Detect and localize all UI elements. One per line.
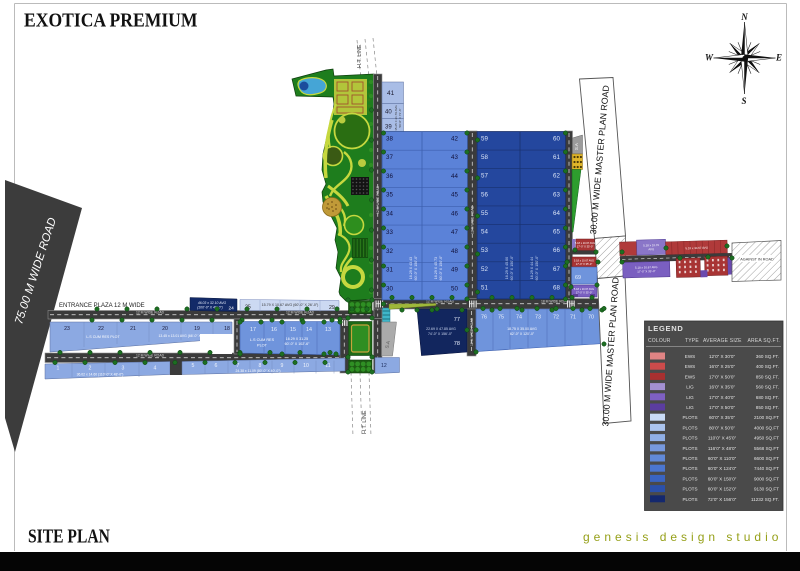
svg-text:PLOTS: PLOTS xyxy=(682,425,697,430)
svg-text:39: 39 xyxy=(385,125,392,131)
svg-text:PLOTS: PLOTS xyxy=(682,415,697,420)
svg-text:850 SQ.FT.: 850 SQ.FT. xyxy=(756,405,779,410)
svg-text:1: 1 xyxy=(57,366,60,372)
svg-text:60’0” X 152’0”: 60’0” X 152’0” xyxy=(708,487,737,492)
svg-text:61: 61 xyxy=(553,154,560,161)
svg-text:9000 SQ.FT: 9000 SQ.FT xyxy=(754,476,779,481)
svg-text:36.02 x 14.60 (110’-0” X 48’-0: 36.02 x 14.60 (110’-0” X 48’-0”) xyxy=(77,373,124,377)
svg-text:12 M WIDE ROAD: 12 M WIDE ROAD xyxy=(286,311,315,315)
svg-text:75: 75 xyxy=(498,315,504,321)
svg-text:9: 9 xyxy=(281,363,284,369)
svg-text:genesis design studio: genesis design studio xyxy=(583,530,782,544)
svg-text:16.29 X 45.00: 16.29 X 45.00 xyxy=(505,257,509,279)
svg-text:38: 38 xyxy=(386,136,393,143)
svg-text:110’0” X 45’0”: 110’0” X 45’0” xyxy=(708,436,737,441)
svg-text:E: E xyxy=(775,53,782,63)
svg-text:33: 33 xyxy=(386,229,393,236)
svg-text:AREA SQ.FT.: AREA SQ.FT. xyxy=(748,338,781,344)
svg-text:49: 49 xyxy=(451,267,458,274)
svg-text:5.18 x 10.67 AVG: 5.18 x 10.67 AVG xyxy=(574,287,594,291)
svg-text:16’0” X 25’0”: 16’0” X 25’0” xyxy=(709,364,736,369)
svg-text:32: 32 xyxy=(386,248,393,255)
svg-text:4000 SQ.FT: 4000 SQ.FT xyxy=(754,425,779,430)
svg-text:43: 43 xyxy=(451,154,458,161)
svg-text:17’0” X 50’0”: 17’0” X 50’0” xyxy=(709,374,736,379)
svg-text:17: 17 xyxy=(250,327,256,333)
svg-text:19: 19 xyxy=(194,326,200,332)
svg-text:PLOTS: PLOTS xyxy=(682,497,697,502)
svg-text:42: 42 xyxy=(451,136,458,143)
svg-text:L.S CUM RES PLOT: L.S CUM RES PLOT xyxy=(86,335,120,339)
svg-text:22: 22 xyxy=(98,326,104,332)
svg-text:74’-0” X 156’-0”: 74’-0” X 156’-0” xyxy=(428,332,453,336)
svg-text:22.69 X 47.85 AVG: 22.69 X 47.85 AVG xyxy=(426,327,456,331)
svg-text:5.18 x 10.67 AVG: 5.18 x 10.67 AVG xyxy=(685,246,708,251)
svg-text:10: 10 xyxy=(303,363,309,369)
svg-text:48: 48 xyxy=(451,248,458,255)
svg-text:9130 SQ.FT: 9130 SQ.FT xyxy=(754,487,779,492)
svg-text:3: 3 xyxy=(122,366,125,372)
svg-text:58: 58 xyxy=(481,154,488,161)
svg-text:S: S xyxy=(741,96,746,106)
svg-text:45: 45 xyxy=(451,192,458,199)
svg-text:5.18 x 10.67 AVG: 5.18 x 10.67 AVG xyxy=(574,259,594,263)
svg-text:73: 73 xyxy=(535,315,541,321)
svg-text:52: 52 xyxy=(481,266,488,273)
svg-text:15: 15 xyxy=(290,327,296,333)
svg-text:SITE PLAN: SITE PLAN xyxy=(28,525,110,547)
svg-text:2: 2 xyxy=(89,366,92,372)
svg-text:18: 18 xyxy=(224,326,230,332)
svg-text:L.S CUM RES: L.S CUM RES xyxy=(250,338,275,342)
svg-text:TYPE: TYPE xyxy=(685,338,699,344)
svg-text:16.29 X 45.73: 16.29 X 45.73 xyxy=(434,257,438,279)
svg-text:77: 77 xyxy=(454,317,460,323)
svg-text:35: 35 xyxy=(386,192,393,199)
svg-text:68: 68 xyxy=(553,284,560,291)
svg-text:12 M WIDE ROAD: 12 M WIDE ROAD xyxy=(471,205,475,234)
svg-text:16’0” X 35’0”: 16’0” X 35’0” xyxy=(709,385,736,390)
svg-text:36: 36 xyxy=(386,173,393,180)
svg-text:PLOT: PLOT xyxy=(257,344,268,348)
svg-text:H.T. LINE: H.T. LINE xyxy=(362,410,368,434)
svg-text:16.29 X 43.43: 16.29 X 43.43 xyxy=(409,257,413,279)
svg-text:EXOTICA PREMIUM: EXOTICA PREMIUM xyxy=(24,10,198,32)
svg-text:17’-0” X 35’-0”: 17’-0” X 35’-0” xyxy=(576,291,593,295)
svg-text:55: 55 xyxy=(481,210,488,217)
svg-text:LIG: LIG xyxy=(686,385,694,390)
svg-text:N: N xyxy=(740,12,748,22)
svg-text:AGAINST IN ROAD: AGAINST IN ROAD xyxy=(740,258,774,262)
svg-text:6600 SQ.FT: 6600 SQ.FT xyxy=(754,456,779,461)
svg-text:69: 69 xyxy=(575,275,581,281)
svg-text:PLOTS: PLOTS xyxy=(682,446,697,451)
svg-text:S.A: S.A xyxy=(574,143,579,150)
svg-text:COLOUR: COLOUR xyxy=(648,338,671,344)
svg-text:360 SQ.FT.: 360 SQ.FT. xyxy=(756,354,779,359)
svg-text:60’-0” X 150’-0”: 60’-0” X 150’-0” xyxy=(510,255,514,281)
svg-text:78: 78 xyxy=(454,341,460,347)
svg-text:50’-0” X 71’-6”: 50’-0” X 71’-6” xyxy=(398,108,402,127)
svg-text:60’-0” X 150’-0”: 60’-0” X 150’-0” xyxy=(535,255,539,281)
svg-text:51: 51 xyxy=(481,284,488,291)
svg-text:PLOTS: PLOTS xyxy=(682,466,697,471)
svg-text:60’0” X 150’0”: 60’0” X 150’0” xyxy=(708,476,737,481)
svg-text:16.29 X 44.44: 16.29 X 44.44 xyxy=(530,257,534,279)
svg-text:16.29 X 31.25: 16.29 X 31.25 xyxy=(286,337,308,341)
svg-text:59: 59 xyxy=(481,136,488,143)
svg-text:12 M WIDE ROAD: 12 M WIDE ROAD xyxy=(376,185,380,214)
svg-text:4950 SQ.FT: 4950 SQ.FT xyxy=(754,436,779,441)
svg-text:18.75 X 35.00 AVG: 18.75 X 35.00 AVG xyxy=(507,327,537,331)
svg-text:12 M WIDE ROAD: 12 M WIDE ROAD xyxy=(470,317,474,346)
svg-text:14: 14 xyxy=(306,327,312,333)
svg-text:56: 56 xyxy=(481,191,488,198)
svg-text:62: 62 xyxy=(553,173,560,180)
svg-text:PLOTS: PLOTS xyxy=(682,436,697,441)
svg-text:60’-0” X 150’-0”: 60’-0” X 150’-0” xyxy=(439,255,443,281)
svg-text:67: 67 xyxy=(553,266,560,273)
svg-text:17’0” X 40’0”: 17’0” X 40’0” xyxy=(709,395,736,400)
svg-text:11232 SQ.FT.: 11232 SQ.FT. xyxy=(751,497,779,502)
svg-text:50: 50 xyxy=(451,285,458,292)
svg-text:31: 31 xyxy=(386,267,393,274)
svg-text:64: 64 xyxy=(553,210,560,217)
svg-text:21: 21 xyxy=(130,326,136,332)
svg-text:AVERAGE SIZE: AVERAGE SIZE xyxy=(703,338,742,344)
svg-text:62’-0” X 120’-0”: 62’-0” X 120’-0” xyxy=(510,332,535,336)
svg-text:17’-0” X 35’-0”: 17’-0” X 35’-0” xyxy=(576,262,593,266)
svg-text:60’0” X 124’0”: 60’0” X 124’0” xyxy=(708,466,737,471)
svg-text:17’-0” X 35’-0”: 17’-0” X 35’-0” xyxy=(637,269,655,274)
svg-text:680 SQ.FT.: 680 SQ.FT. xyxy=(756,395,779,400)
svg-text:5568 SQ.FT: 5568 SQ.FT xyxy=(754,446,779,451)
svg-text:80’0” X 50’0”: 80’0” X 50’0” xyxy=(709,425,736,430)
svg-text:4: 4 xyxy=(154,366,157,372)
svg-text:44: 44 xyxy=(451,173,458,180)
svg-text:PLOTS: PLOTS xyxy=(682,487,697,492)
svg-text:41: 41 xyxy=(387,90,395,97)
svg-text:116’0” X 48’0”: 116’0” X 48’0” xyxy=(708,446,737,451)
svg-text:H.T. LINE: H.T. LINE xyxy=(357,44,363,68)
svg-text:W: W xyxy=(705,53,714,63)
svg-text:12’0” X 30’0”: 12’0” X 30’0” xyxy=(709,354,736,359)
svg-text:54: 54 xyxy=(481,229,488,236)
svg-text:PLOTS: PLOTS xyxy=(682,476,697,481)
svg-text:53: 53 xyxy=(481,247,488,254)
svg-text:850 SQ.FT.: 850 SQ.FT. xyxy=(756,374,779,379)
svg-text:29: 29 xyxy=(329,305,335,311)
svg-text:17’0” X 50’0”: 17’0” X 50’0” xyxy=(709,405,736,410)
svg-text:46.03 x 32.10 AVG: 46.03 x 32.10 AVG xyxy=(198,301,227,305)
svg-text:70: 70 xyxy=(588,315,594,321)
svg-text:37: 37 xyxy=(386,154,393,161)
svg-text:16: 16 xyxy=(271,327,277,333)
svg-text:60: 60 xyxy=(553,136,560,143)
svg-text:60’-0” X 102’-6”: 60’-0” X 102’-6” xyxy=(285,342,311,346)
svg-text:34: 34 xyxy=(386,210,393,217)
svg-text:AVG: AVG xyxy=(648,247,655,251)
svg-text:EWS: EWS xyxy=(685,364,695,369)
svg-text:7440 SQ.FT: 7440 SQ.FT xyxy=(754,466,779,471)
svg-text:5: 5 xyxy=(192,363,195,369)
svg-text:46: 46 xyxy=(451,210,458,217)
svg-text:63: 63 xyxy=(553,191,560,198)
svg-text:60’0” X 110’0”: 60’0” X 110’0” xyxy=(708,456,737,461)
svg-text:72’0” X 156’0”: 72’0” X 156’0” xyxy=(708,497,737,502)
svg-text:5.18 x 10.67 AVG: 5.18 x 10.67 AVG xyxy=(575,241,595,245)
svg-text:PLOTS: PLOTS xyxy=(682,456,697,461)
svg-text:60’-0” X 150’-0”: 60’-0” X 150’-0” xyxy=(414,255,418,281)
svg-text:40: 40 xyxy=(385,110,392,116)
svg-text:72: 72 xyxy=(553,315,559,321)
svg-text:23: 23 xyxy=(64,326,70,332)
svg-text:24: 24 xyxy=(229,306,235,312)
svg-text:30: 30 xyxy=(386,285,393,292)
svg-text:24.38 x 11.09 (80’-0” X 40’-0”: 24.38 x 11.09 (80’-0” X 40’-0”) xyxy=(236,369,281,373)
svg-text:12: 12 xyxy=(381,363,387,369)
svg-text:LIG: LIG xyxy=(686,395,694,400)
svg-text:47: 47 xyxy=(451,229,458,236)
svg-text:EWS: EWS xyxy=(685,354,695,359)
svg-text:13: 13 xyxy=(325,327,331,333)
svg-text:66: 66 xyxy=(553,247,560,254)
svg-text:LEGEND: LEGEND xyxy=(648,324,683,333)
svg-text:560 SQ.FT.: 560 SQ.FT. xyxy=(756,385,779,390)
svg-text:60’0” X 35’0”: 60’0” X 35’0” xyxy=(709,415,736,420)
svg-text:57: 57 xyxy=(481,173,488,180)
svg-text:20: 20 xyxy=(162,326,168,332)
svg-text:400 SQ.FT.: 400 SQ.FT. xyxy=(756,364,779,369)
svg-text:2100 SQ.FT: 2100 SQ.FT xyxy=(754,415,779,420)
svg-text:15.79 X 10.67 AVG (60’-0” X 26: 15.79 X 10.67 AVG (60’-0” X 26’-0”) xyxy=(262,303,319,307)
svg-text:65: 65 xyxy=(553,229,560,236)
svg-text:17’-0” X 35’-0”: 17’-0” X 35’-0” xyxy=(577,245,594,249)
svg-text:EWS: EWS xyxy=(685,374,695,379)
svg-text:74: 74 xyxy=(516,315,522,321)
svg-text:LIG: LIG xyxy=(686,405,694,410)
svg-text:12 M WIDE ROAD: 12 M WIDE ROAD xyxy=(136,311,165,315)
svg-text:71: 71 xyxy=(570,315,576,321)
svg-text:ENTRANCE PLAZA 12 M WIDE: ENTRANCE PLAZA 12 M WIDE xyxy=(59,303,145,309)
svg-text:6: 6 xyxy=(215,363,218,369)
svg-text:76: 76 xyxy=(481,315,487,321)
